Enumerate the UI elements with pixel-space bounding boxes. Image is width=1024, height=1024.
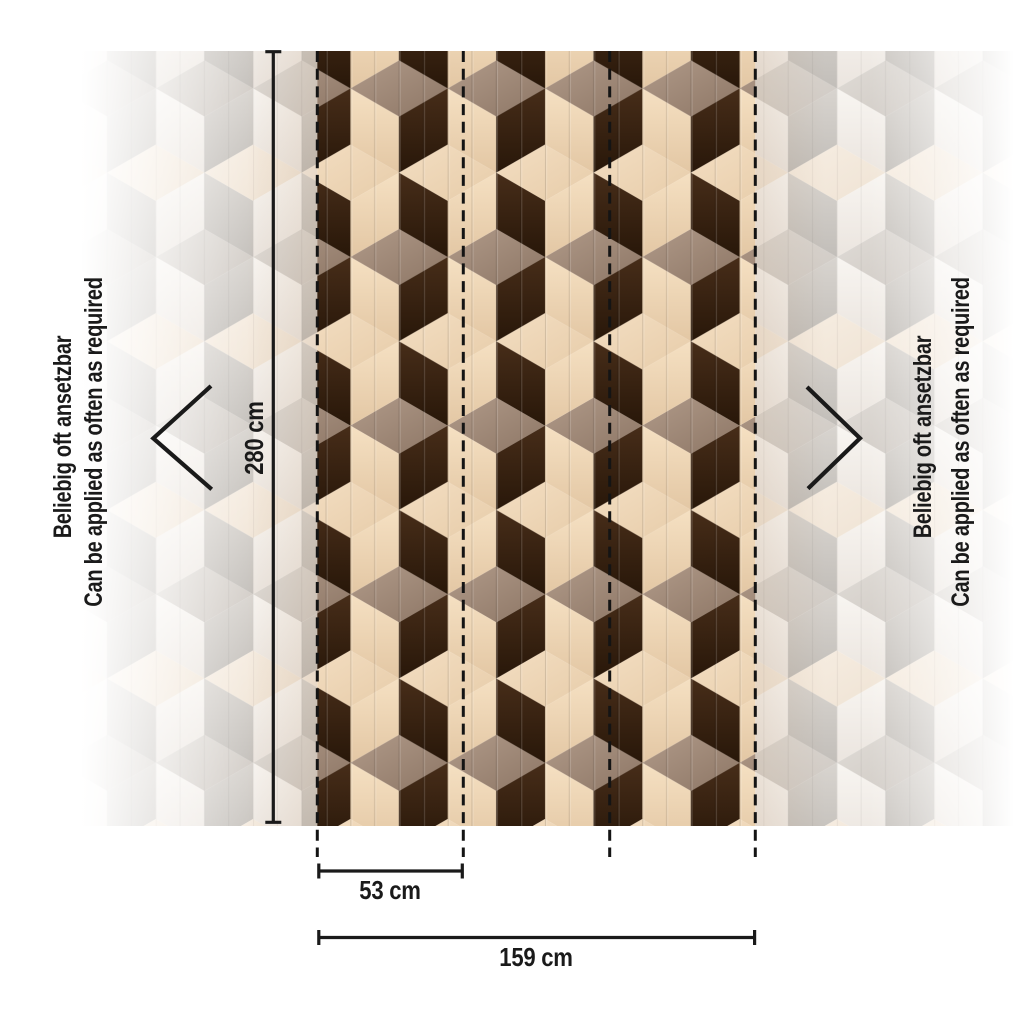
- total-width-dimension-label: 159 cm: [485, 944, 587, 971]
- repeat-note-right-en: Can be applied as often as required: [948, 282, 974, 602]
- strip-width-dimension-label: 53 cm: [339, 877, 441, 904]
- repeat-note-right-de: Beliebig oft ansetzbar: [910, 277, 936, 597]
- warm-tint-right: [755, 51, 825, 826]
- wallpaper-panel-center: [317, 51, 755, 826]
- illustration-canvas: [0, 0, 1024, 1024]
- wallpaper-dimension-illustration: 280 cm 53 cm 159 cm Beliebig oft ansetzb…: [0, 0, 1024, 1024]
- repeat-note-left-de: Beliebig oft ansetzbar: [50, 277, 76, 597]
- repeat-note-left-en: Can be applied as often as required: [81, 282, 107, 602]
- height-dimension-label: 280 cm: [239, 353, 269, 523]
